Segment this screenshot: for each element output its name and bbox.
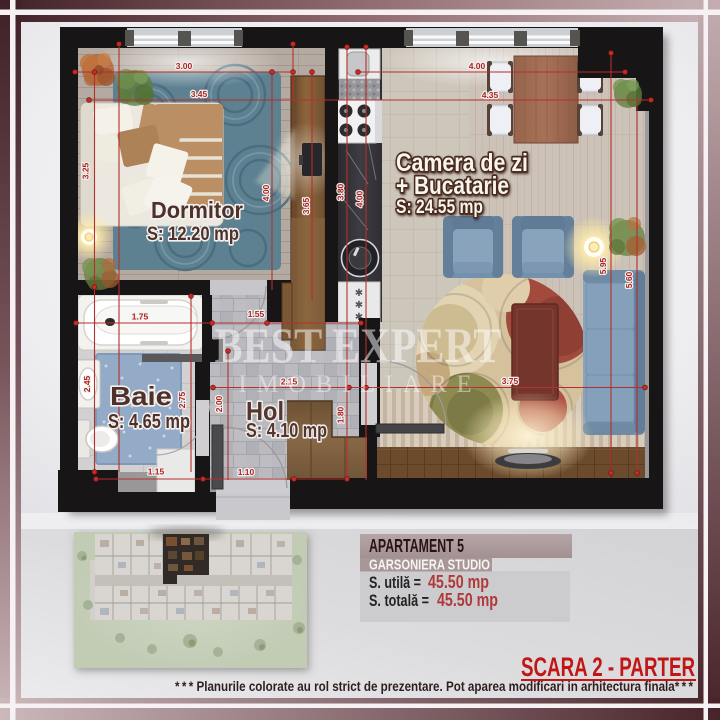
svg-text:S: 4.10 mp: S: 4.10 mp bbox=[246, 420, 327, 442]
svg-text:2.75: 2.75 bbox=[177, 391, 187, 408]
svg-text:4.00: 4.00 bbox=[469, 61, 486, 71]
svg-text:3.65: 3.65 bbox=[301, 197, 311, 214]
svg-text:5.60: 5.60 bbox=[624, 271, 634, 288]
svg-text:S. totală =: S. totală = bbox=[369, 591, 429, 610]
svg-text:5.95: 5.95 bbox=[598, 257, 608, 274]
svg-text:S: 4.65 mp: S: 4.65 mp bbox=[108, 411, 190, 433]
svg-text:✱: ✱ bbox=[355, 288, 363, 299]
svg-text:3.00: 3.00 bbox=[176, 61, 193, 71]
svg-text:4.00: 4.00 bbox=[261, 184, 271, 201]
svg-text:3.80: 3.80 bbox=[336, 183, 346, 200]
svg-text:2.45: 2.45 bbox=[82, 375, 92, 392]
svg-text:1.75: 1.75 bbox=[132, 312, 149, 322]
svg-text:* * * Planurile colorate au r: * * * Planurile colorate au rol strict d… bbox=[175, 679, 694, 694]
svg-text:1.80: 1.80 bbox=[336, 406, 346, 423]
svg-text:1.15: 1.15 bbox=[148, 467, 165, 477]
svg-text:SCARA 2 - PARTER: SCARA 2 - PARTER bbox=[521, 652, 695, 682]
svg-text:45.50 mp: 45.50 mp bbox=[428, 572, 489, 592]
svg-text:S: 12.20 mp: S: 12.20 mp bbox=[147, 224, 239, 245]
svg-text:+ Bucatarie: + Bucatarie bbox=[396, 172, 509, 200]
svg-text:4.00: 4.00 bbox=[355, 190, 365, 207]
svg-text:3.45: 3.45 bbox=[191, 89, 208, 99]
svg-text:✱: ✱ bbox=[355, 300, 363, 311]
svg-text:1.10: 1.10 bbox=[238, 467, 255, 477]
svg-text:BEST EXPERT: BEST EXPERT bbox=[215, 317, 502, 373]
svg-text:45.50 mp: 45.50 mp bbox=[437, 590, 498, 610]
svg-text:Baie: Baie bbox=[110, 381, 172, 411]
svg-text:Dormitor: Dormitor bbox=[151, 197, 243, 223]
svg-text:APARTAMENT 5: APARTAMENT 5 bbox=[369, 536, 464, 556]
svg-text:IMOBILIARE: IMOBILIARE bbox=[239, 371, 482, 398]
svg-text:2.00: 2.00 bbox=[214, 395, 224, 412]
svg-text:3.75: 3.75 bbox=[502, 376, 519, 386]
svg-text:4.35: 4.35 bbox=[482, 90, 499, 100]
svg-text:S: 24.55 mp: S: 24.55 mp bbox=[396, 197, 483, 218]
svg-text:3.25: 3.25 bbox=[81, 162, 91, 179]
svg-text:S. utilă =: S. utilă = bbox=[369, 573, 421, 592]
